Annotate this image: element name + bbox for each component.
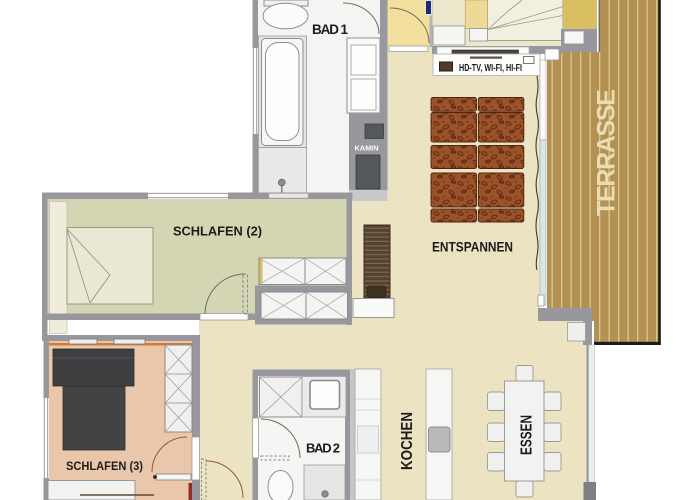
svg-text:BAD 1: BAD 1	[312, 22, 348, 37]
svg-text:HD-TV, WI-FI, HI-FI: HD-TV, WI-FI, HI-FI	[459, 63, 522, 74]
svg-text:KAMIN: KAMIN	[355, 146, 379, 153]
svg-text:ENTSPANNEN: ENTSPANNEN	[432, 239, 513, 255]
svg-text:TERRASSE: TERRASSE	[593, 88, 621, 216]
svg-text:SCHLAFEN (3): SCHLAFEN (3)	[66, 459, 143, 473]
svg-text:ESSEN: ESSEN	[519, 415, 536, 455]
svg-text:BAD 2: BAD 2	[306, 441, 340, 456]
svg-text:KOCHEN: KOCHEN	[399, 412, 416, 470]
svg-text:SCHLAFEN (2): SCHLAFEN (2)	[173, 224, 262, 239]
